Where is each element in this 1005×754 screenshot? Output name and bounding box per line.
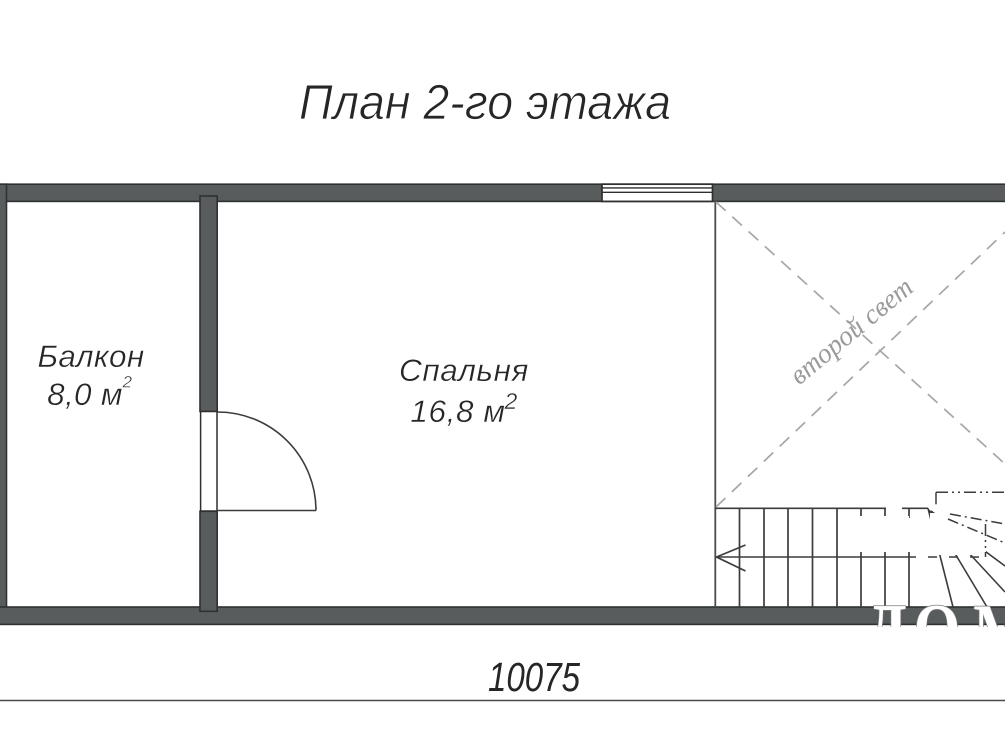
- svg-text:Спальня: Спальня: [399, 352, 529, 388]
- svg-text:16,8 м: 16,8 м: [410, 393, 505, 429]
- svg-text:План 2-го этажа: План 2-го этажа: [299, 76, 671, 130]
- svg-text:10075: 10075: [488, 654, 580, 700]
- svg-text:второй свет: второй свет: [784, 272, 919, 391]
- svg-text:Балкон: Балкон: [38, 338, 145, 374]
- svg-text:8,0 м: 8,0 м: [47, 376, 123, 412]
- svg-text:2: 2: [122, 373, 133, 392]
- svg-text:2: 2: [504, 388, 518, 414]
